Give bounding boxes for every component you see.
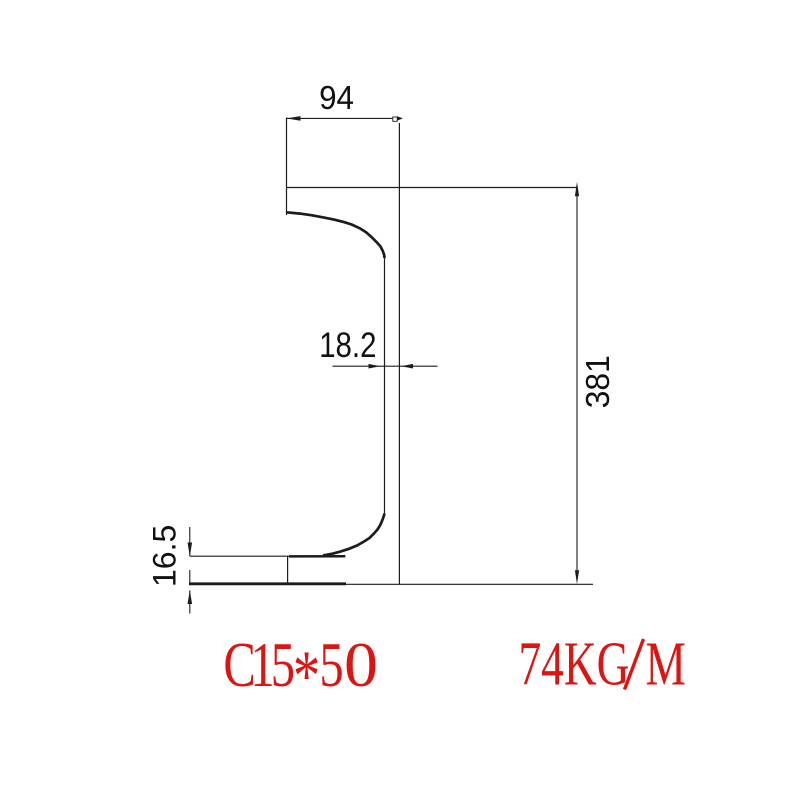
svg-text:94: 94 — [319, 79, 354, 116]
svg-text:18.2: 18.2 — [319, 325, 376, 364]
svg-text:C15*5: C15*5 — [223, 630, 343, 716]
svg-text:381: 381 — [578, 355, 616, 408]
svg-text:16.5: 16.5 — [147, 525, 183, 587]
svg-text:M: M — [646, 628, 686, 698]
svg-text:74KG: 74KG — [519, 628, 630, 698]
svg-text:0: 0 — [344, 630, 378, 701]
